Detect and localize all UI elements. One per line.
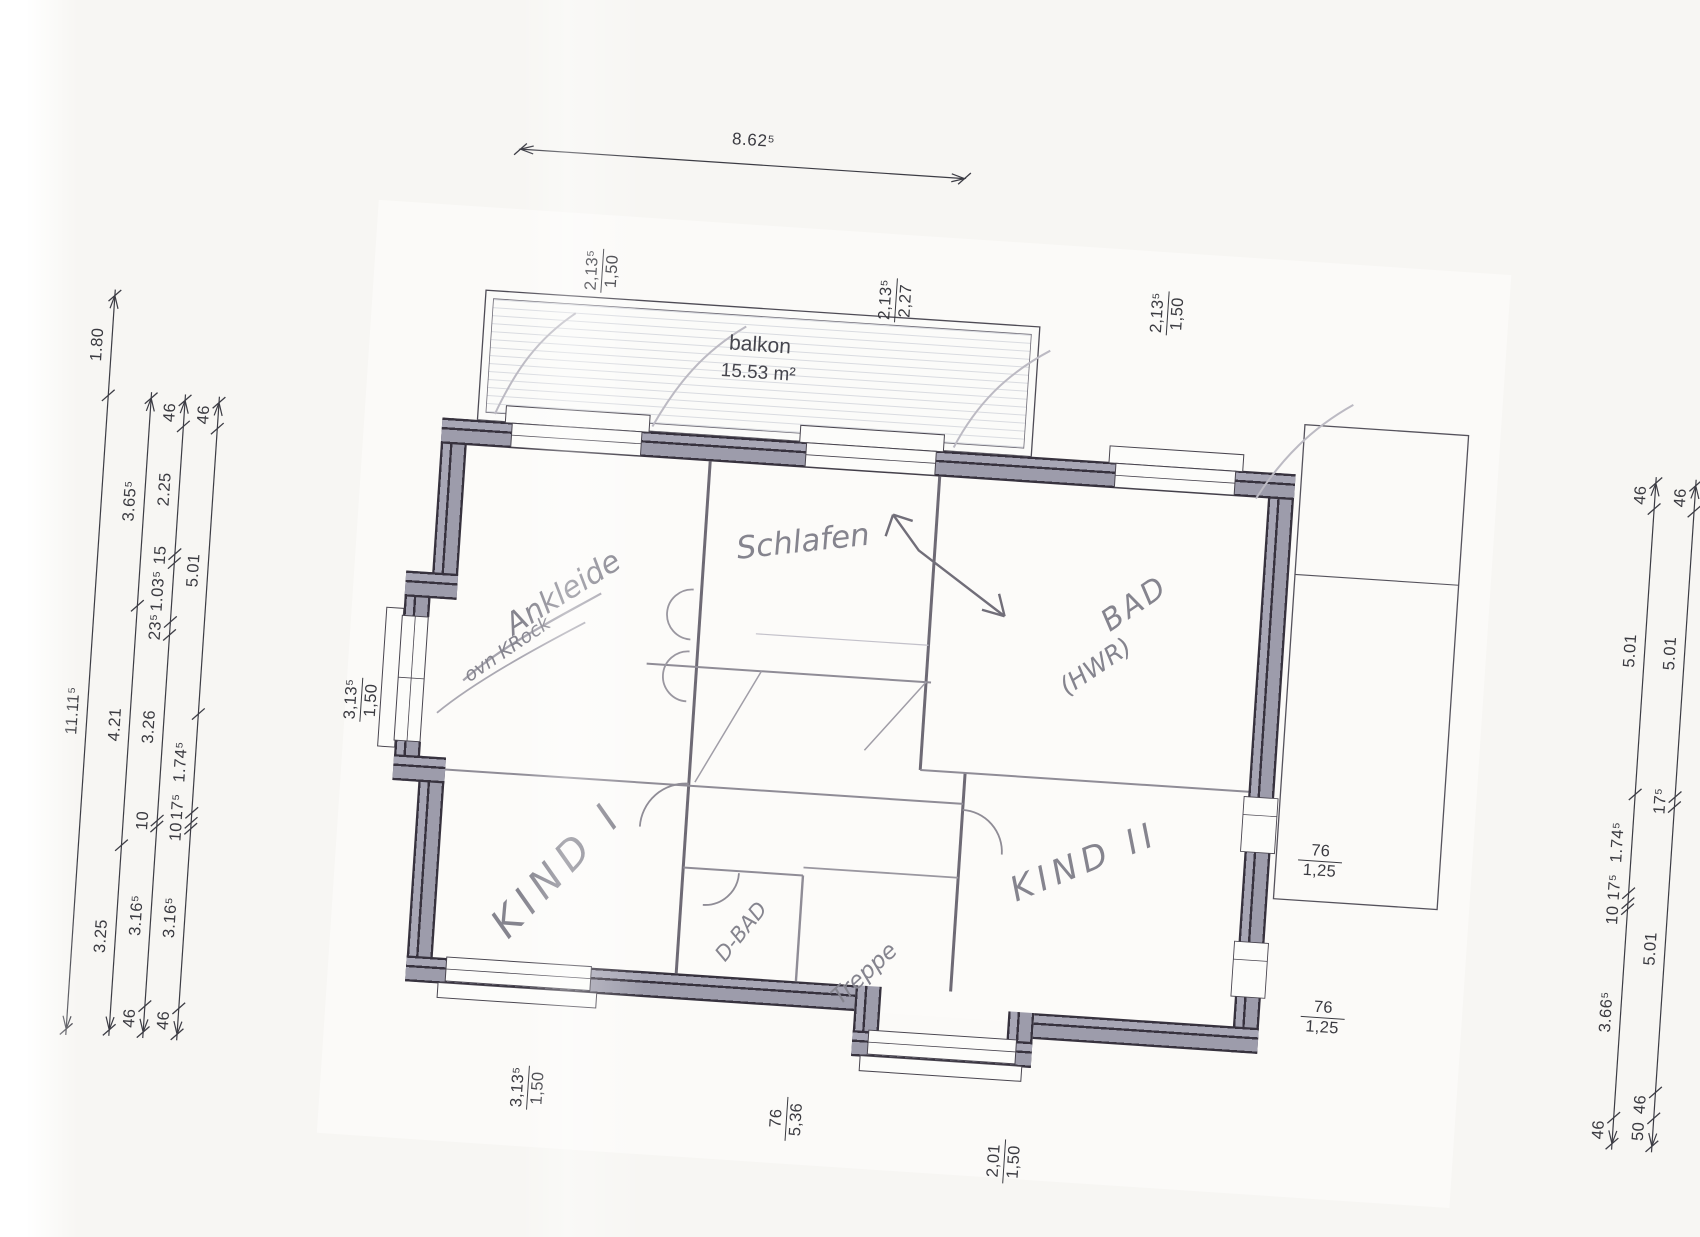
dimension-label: 23⁵	[146, 613, 167, 641]
dimension-label: 5.01	[1660, 636, 1681, 671]
dimension-label: 3.16⁵	[160, 897, 182, 939]
fraction-denominator: 5,36	[787, 1102, 806, 1136]
room-label-kind2: KIND II	[1004, 814, 1164, 910]
fraction-numerator: 2,13⁵	[582, 249, 602, 291]
balcony-label: balkon	[728, 331, 791, 359]
labels-layer: balkon 15.53 m² 8.62⁵ Ankleide ovn KRock…	[0, 0, 1700, 1237]
dimension-label: 5.01	[183, 553, 204, 588]
room-label-dbad: D-BAD	[710, 897, 772, 966]
dimension-label: 17⁵	[168, 793, 189, 821]
dimension-label: 2.25	[155, 472, 176, 507]
dimension-label: 17⁵	[1650, 787, 1671, 815]
dimension-label: 46	[160, 402, 180, 422]
dimension-fraction: 2,13⁵1,50	[1148, 290, 1188, 336]
dimension-label: 3.65⁵	[119, 480, 141, 522]
dimension-label: 10	[133, 810, 153, 830]
dimension-fraction: 761,25	[1297, 841, 1343, 881]
fraction-denominator: 2,27	[897, 284, 916, 318]
fraction-numerator: 2,13⁵	[1148, 292, 1168, 334]
fraction-numerator: 2,01	[985, 1144, 1004, 1178]
dimension-label: 46	[120, 1008, 140, 1028]
dimension-fraction: 2,13⁵2,27	[876, 277, 916, 323]
room-label-bad: BAD	[1095, 569, 1175, 639]
fraction-numerator: 76	[1313, 999, 1333, 1018]
room-label-kind1: KIND I	[482, 791, 634, 946]
fraction-denominator: 1,50	[603, 254, 622, 288]
fraction-denominator: 1,25	[1302, 862, 1336, 881]
dimension-label: 17⁵	[1605, 873, 1626, 901]
fraction-numerator: 76	[767, 1108, 786, 1128]
overall-width-dimension: 8.62⁵	[731, 129, 775, 152]
dimension-label: 3.26	[139, 709, 160, 744]
fraction-numerator: 3,13⁵	[342, 678, 362, 720]
dimension-label: 46	[1589, 1120, 1609, 1140]
dimension-label: 50	[1629, 1121, 1649, 1141]
room-label-bad-sub: (HWR)	[1054, 632, 1137, 701]
fraction-denominator: 1,50	[362, 683, 381, 717]
dimension-label: 1.74⁵	[170, 741, 192, 783]
fraction-numerator: 76	[1311, 842, 1331, 861]
dimension-label: 46	[194, 405, 214, 425]
fraction-denominator: 1,50	[1168, 297, 1187, 331]
dimension-fraction: 761,25	[1299, 998, 1345, 1038]
fraction-numerator: 3,13⁵	[508, 1066, 528, 1108]
dimension-label: 5.01	[1620, 633, 1641, 668]
dimension-label: 15	[151, 545, 171, 565]
dimension-label: 4.21	[105, 707, 126, 742]
room-label-treppe: Treppe	[827, 938, 903, 1010]
fraction-numerator: 2,13⁵	[876, 279, 896, 321]
dimension-label: 3.66⁵	[1596, 991, 1618, 1033]
dimension-label: 46	[1671, 488, 1691, 508]
scanned-floor-plan-page: balkon 15.53 m² 8.62⁵ Ankleide ovn KRock…	[0, 0, 1700, 1237]
dimension-label: 11.11⁵	[62, 686, 84, 735]
dimension-fraction: 2,13⁵1,50	[582, 248, 622, 294]
dimension-label: 1.80	[87, 327, 108, 362]
dimension-fraction: 2,011,50	[984, 1138, 1024, 1184]
balcony-area: 15.53 m²	[720, 360, 796, 387]
fraction-denominator: 1,50	[1005, 1145, 1024, 1179]
dimension-label: 3.16⁵	[126, 894, 148, 936]
dimension-fraction: 3,13⁵1,50	[341, 677, 381, 723]
dimension-label: 10	[166, 822, 186, 842]
dimension-fraction: 765,36	[767, 1096, 807, 1142]
dimension-label: 46	[154, 1010, 174, 1030]
dimension-label: 3.25	[91, 919, 112, 954]
dimension-label: 10	[1603, 905, 1623, 925]
fraction-denominator: 1,50	[529, 1071, 548, 1105]
dimension-label: 1.74⁵	[1607, 821, 1629, 863]
dimension-fraction: 3,13⁵1,50	[508, 1065, 548, 1111]
room-label-schlafen: Schlafen	[735, 517, 872, 567]
dimension-label: 5.01	[1640, 931, 1661, 966]
dimension-label: 46	[1631, 1094, 1651, 1114]
fraction-denominator: 1,25	[1305, 1019, 1339, 1038]
dimension-label: 46	[1631, 485, 1651, 505]
dimension-label: 1.03⁵	[148, 570, 170, 612]
